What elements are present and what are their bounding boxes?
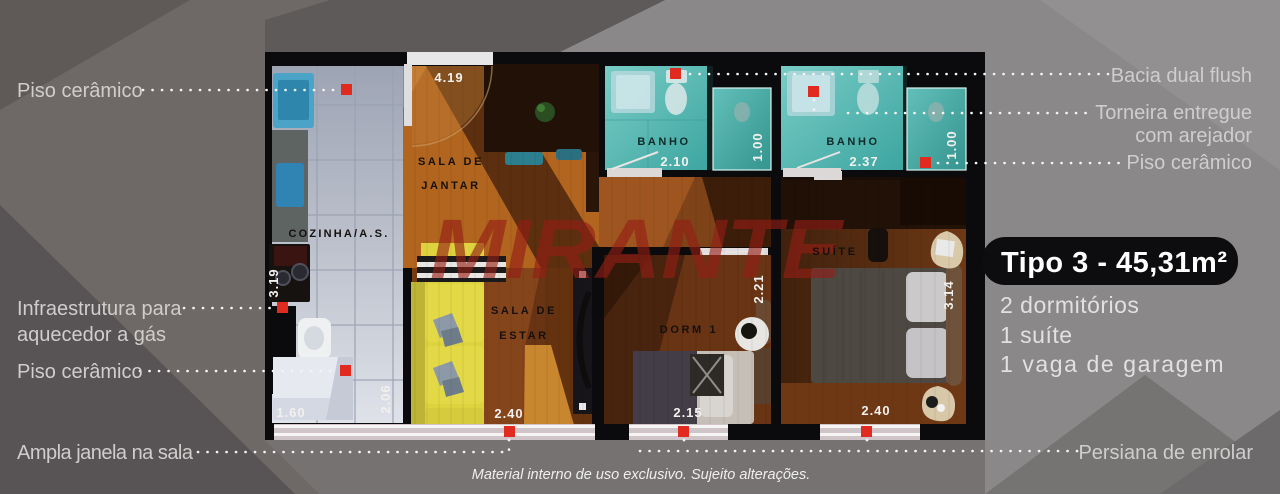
svg-text:2.40: 2.40 — [861, 403, 890, 418]
svg-text:Piso cerâmico: Piso cerâmico — [1126, 152, 1252, 174]
svg-text:Material interno de uso exclus: Material interno de uso exclusivo. Sujei… — [472, 467, 811, 483]
svg-text:1.60: 1.60 — [276, 405, 305, 420]
svg-text:SALA DE: SALA DE — [491, 305, 557, 317]
svg-text:BANHO: BANHO — [826, 136, 879, 148]
svg-text:2.10: 2.10 — [660, 154, 689, 169]
svg-text:MIRANTE: MIRANTE — [430, 202, 845, 296]
svg-text:Piso cerâmico: Piso cerâmico — [17, 361, 143, 383]
svg-text:JANTAR: JANTAR — [421, 180, 480, 192]
svg-text:1.00: 1.00 — [750, 132, 765, 161]
svg-text:aquecedor a gás: aquecedor a gás — [17, 324, 166, 346]
svg-text:ESTAR: ESTAR — [499, 330, 548, 342]
svg-text:2.40: 2.40 — [494, 406, 523, 421]
svg-text:BANHO: BANHO — [637, 136, 690, 148]
svg-text:Piso cerâmico: Piso cerâmico — [17, 80, 143, 102]
svg-text:1 suíte: 1 suíte — [1000, 322, 1073, 348]
svg-text:4.19: 4.19 — [434, 70, 463, 85]
svg-text:2.37: 2.37 — [849, 154, 878, 169]
svg-text:Tipo 3 - 45,31m²: Tipo 3 - 45,31m² — [1001, 247, 1227, 279]
svg-text:1 vaga de garagem: 1 vaga de garagem — [1000, 351, 1224, 377]
svg-text:Persiana de enrolar: Persiana de enrolar — [1078, 442, 1253, 464]
svg-text:2.06: 2.06 — [378, 384, 393, 413]
svg-text:2.21: 2.21 — [751, 274, 766, 303]
svg-text:2 dormitórios: 2 dormitórios — [1000, 292, 1139, 318]
svg-text:3.19: 3.19 — [266, 268, 281, 297]
svg-text:Torneira entregue: Torneira entregue — [1095, 102, 1252, 124]
svg-text:SUÍTE: SUÍTE — [812, 245, 857, 258]
svg-text:COZINHA/A.S.: COZINHA/A.S. — [289, 228, 390, 240]
svg-text:DORM 1: DORM 1 — [660, 324, 718, 336]
svg-text:Infraestrutura para: Infraestrutura para — [17, 298, 182, 320]
svg-text:SALA DE: SALA DE — [418, 156, 484, 168]
svg-text:com arejador: com arejador — [1135, 125, 1252, 147]
svg-text:Bacia dual flush: Bacia dual flush — [1111, 65, 1252, 87]
svg-text:3.14: 3.14 — [941, 280, 956, 309]
svg-text:Ampla janela na sala: Ampla janela na sala — [17, 442, 194, 464]
svg-text:1.00: 1.00 — [944, 130, 959, 159]
svg-text:2.15: 2.15 — [673, 405, 702, 420]
